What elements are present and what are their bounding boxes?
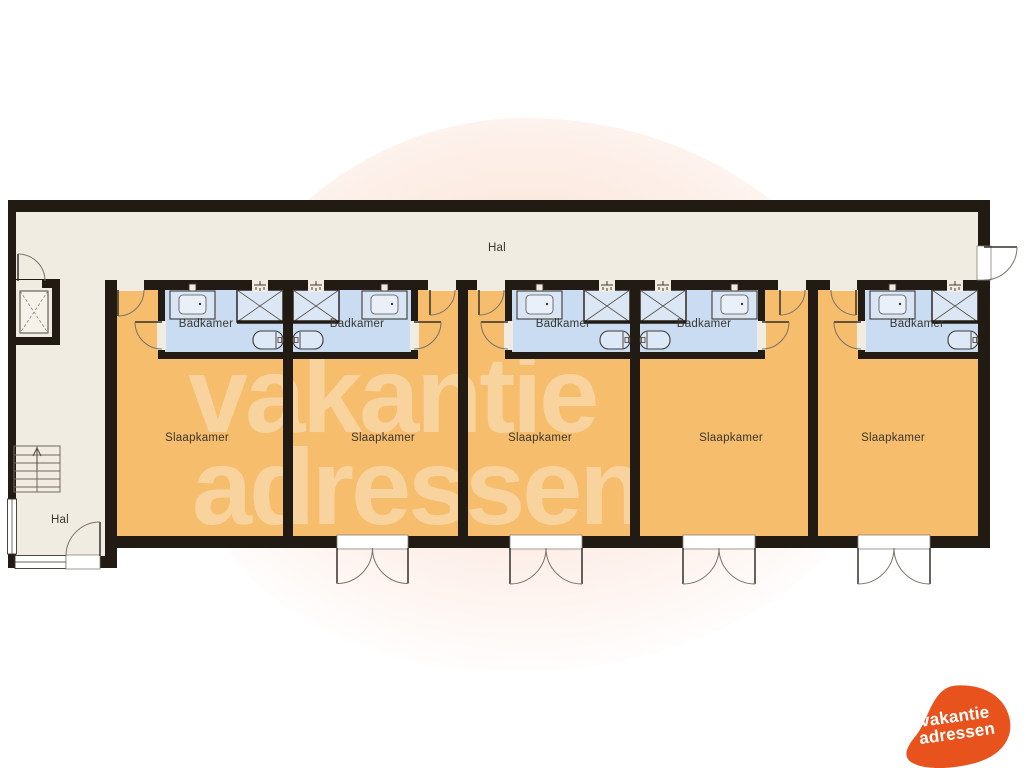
- bedroom-label-5: Slaapkamer: [861, 432, 925, 444]
- toilet-icon-2: [293, 331, 323, 349]
- hall-door-gap-2: [428, 279, 456, 291]
- toilet-icon-5: [948, 331, 978, 349]
- watermark-line2: adressen: [192, 426, 642, 547]
- hall-door-gap-5: [830, 279, 857, 291]
- bathroom-label-4: Badkamer: [677, 318, 731, 330]
- hallway-exit-door: [977, 246, 1017, 280]
- elevator-door-gap: [16, 280, 42, 288]
- bathroom-label-5: Badkamer: [890, 318, 944, 330]
- hallway-label: Hal: [488, 242, 506, 254]
- toilet-icon-3: [600, 331, 630, 349]
- french-door-3: [510, 535, 582, 584]
- french-door-5: [858, 535, 930, 584]
- bathroom-label-2: Badkamer: [330, 318, 384, 330]
- french-door-4: [683, 535, 755, 584]
- bathroom-label-3: Badkamer: [536, 318, 590, 330]
- bathroom-door-gap-2: [410, 321, 419, 350]
- bedroom-label-2: Slaapkamer: [351, 432, 415, 444]
- bathroom-door-gap-1: [157, 321, 166, 350]
- logo-text: vakantie adressen: [893, 676, 1020, 768]
- hall-door-gap-3: [477, 279, 505, 291]
- window-bottom: [15, 556, 66, 569]
- bedroom-label-1: Slaapkamer: [165, 432, 229, 444]
- bathroom-label-1: Badkamer: [179, 318, 233, 330]
- entry-hall-label: Hal: [51, 514, 69, 526]
- window-left: [8, 499, 17, 554]
- bedroom-label-4: Slaapkamer: [699, 432, 763, 444]
- vakantieadressen-logo: vakantie adressen: [893, 676, 1020, 768]
- toilet-icon-1: [253, 331, 283, 349]
- toilet-icon-4: [640, 331, 670, 349]
- bathroom-door-gap-3: [504, 321, 513, 350]
- bedroom-label-3: Slaapkamer: [508, 432, 572, 444]
- hall-door-gap-1: [117, 279, 144, 291]
- bathroom-door-gap-5: [857, 321, 866, 350]
- floorplan-drawing: vakantie adressen: [0, 0, 1024, 768]
- bathroom-door-gap-4: [757, 321, 766, 350]
- french-door-2: [337, 535, 408, 584]
- floorplan-page: vakantie adressen: [0, 0, 1024, 768]
- hall-door-gap-4: [778, 279, 806, 291]
